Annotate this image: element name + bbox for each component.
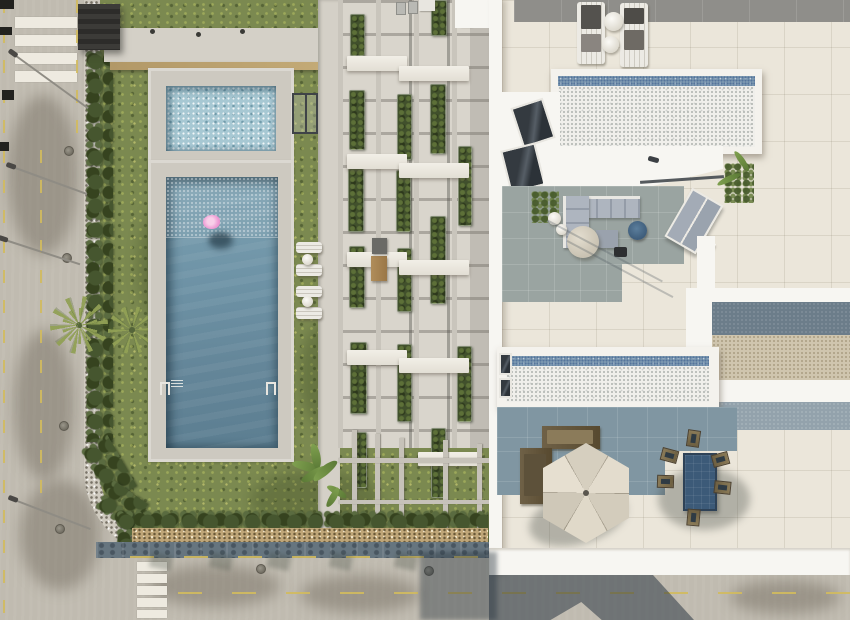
skylight: [499, 378, 512, 398]
building-shadow: [489, 575, 694, 620]
lounger-towel: [624, 30, 644, 50]
pool-shallow-shelf: [166, 177, 278, 238]
side-table: [302, 254, 313, 265]
terrace-chair: [396, 2, 406, 15]
kids-pool: [166, 86, 276, 151]
rooftop-pool: [558, 86, 755, 147]
rooftop-side-table: [604, 12, 623, 31]
pebble-strip: [132, 528, 488, 542]
crosswalk-bottom-bar: [137, 610, 167, 618]
outdoor-sofa: [584, 196, 640, 218]
pergola-beam: [338, 458, 489, 463]
road-center-line: [40, 150, 42, 510]
walkway-top: [104, 28, 330, 62]
sprawling-plant: [724, 163, 754, 203]
road-stain: [14, 330, 74, 480]
bollard-light: [150, 29, 155, 34]
manhole: [55, 524, 65, 534]
flamingo-float: [203, 215, 220, 229]
terrace-awning: [347, 350, 407, 365]
bench-cushion: [524, 454, 546, 496]
crosswalk-top-bar: [15, 35, 77, 46]
road-stain: [730, 580, 840, 614]
dining-chair: [686, 429, 701, 448]
hedge-shadow: [394, 552, 419, 571]
manhole: [256, 564, 266, 574]
roadside-object: [2, 90, 14, 100]
terrace-chair: [408, 1, 418, 14]
rooftop-pool-mosaic-strip: [558, 76, 755, 86]
hedge-shadow: [329, 552, 354, 571]
terrace-awning: [399, 66, 469, 81]
pool-steps-mark: [171, 380, 183, 388]
terrace-table: [419, 0, 435, 11]
tile-band-beige: [712, 335, 850, 382]
crosswalk-bottom-bar: [137, 598, 167, 607]
road-stain: [300, 575, 420, 613]
sun-lounger: [296, 307, 322, 319]
scene-stage: [0, 0, 850, 620]
skylight: [499, 353, 512, 375]
road-stain: [8, 95, 78, 255]
pool-ladder: [160, 382, 170, 395]
crosswalk-bottom-bar: [137, 574, 167, 583]
dining-chair: [713, 480, 731, 495]
pergola-beam: [338, 500, 489, 504]
terrace-planter: [430, 84, 446, 154]
roadside-object: [0, 0, 14, 9]
sun-lounger: [296, 264, 322, 276]
rooftop-pool-mosaic-strip: [506, 356, 709, 366]
terrace-tiles-blue: [497, 407, 737, 451]
tile-band-dark: [712, 302, 850, 335]
hedge-shadow: [267, 552, 292, 571]
pool-ladder: [266, 382, 276, 395]
sofa-ottoman: [596, 230, 618, 248]
building-shadow: [420, 552, 497, 620]
terrace-awning: [399, 163, 469, 178]
wooden-table: [371, 256, 387, 281]
road-edge-line: [76, 0, 78, 140]
dining-chair: [657, 475, 674, 489]
terrace-planter: [396, 170, 411, 232]
roadside-object: [0, 142, 9, 151]
dining-chair: [686, 508, 700, 526]
manhole: [64, 146, 74, 156]
terrace-planter: [349, 90, 365, 150]
rooftop-gray-band: [514, 0, 850, 22]
bench-cushion: [547, 430, 593, 444]
crosswalk-top-bar: [15, 17, 77, 28]
roadside-object: [0, 27, 12, 35]
lounger-towel: [581, 34, 601, 52]
parapet-wall: [697, 236, 715, 292]
flamingo-float-shadow: [210, 233, 230, 246]
terrace-awning: [399, 358, 469, 373]
bollard-light: [196, 32, 201, 37]
bollard-light: [240, 29, 245, 34]
bottom-parapet: [489, 548, 850, 575]
terrace-planter: [458, 146, 472, 226]
terrace-awning: [399, 260, 469, 275]
hedge-row-left: [85, 50, 113, 442]
grill-unit: [372, 238, 387, 254]
terrace-shading: [470, 0, 489, 448]
pool-gate: [292, 93, 318, 134]
crosswalk-bottom-bar: [137, 586, 167, 595]
terrace-tiles-gray: [502, 264, 622, 302]
side-table: [302, 296, 313, 307]
rooftop-stool: [602, 36, 619, 53]
lounger-towel: [624, 8, 644, 24]
terrace-roof-piece: [455, 0, 489, 28]
entrance-pergola: [78, 4, 120, 50]
manhole: [59, 421, 69, 431]
coffee-table: [628, 221, 647, 240]
lounger-towel: [581, 5, 601, 29]
terrace-planter: [348, 168, 364, 232]
terrace-planter: [350, 14, 365, 56]
terrace-awning: [347, 56, 407, 71]
rooftop-pool: [506, 366, 709, 402]
terrace-planter: [397, 94, 412, 160]
terrace-awning: [347, 154, 407, 169]
sun-lounger: [296, 242, 322, 253]
